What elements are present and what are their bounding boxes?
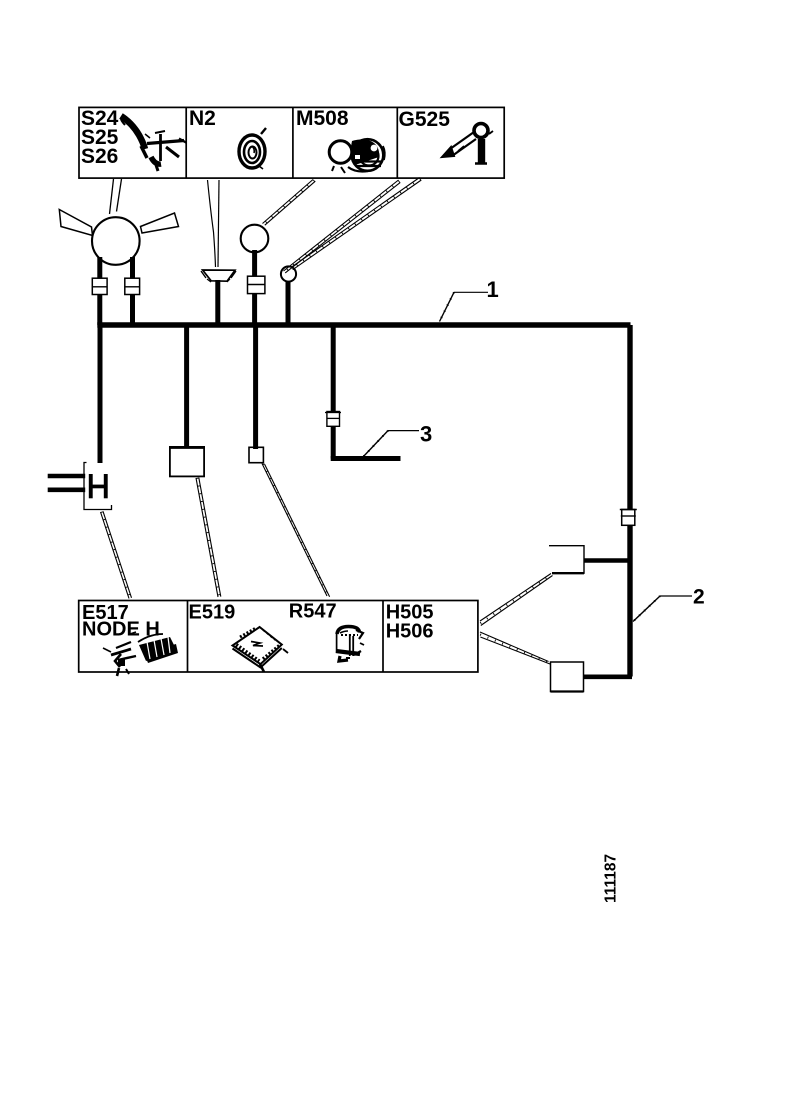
svg-text:3: 3 [420,422,432,447]
svg-text:G525: G525 [399,108,451,131]
svg-text:H506: H506 [386,621,434,643]
svg-text:111187: 111187 [603,854,620,903]
svg-text:S26: S26 [81,145,118,168]
svg-text:M508: M508 [296,107,349,130]
svg-text:2: 2 [693,586,705,609]
svg-text:E519: E519 [189,602,236,624]
svg-text:1: 1 [487,277,499,302]
svg-text:R547: R547 [289,601,337,623]
svg-text:N2: N2 [189,107,216,130]
